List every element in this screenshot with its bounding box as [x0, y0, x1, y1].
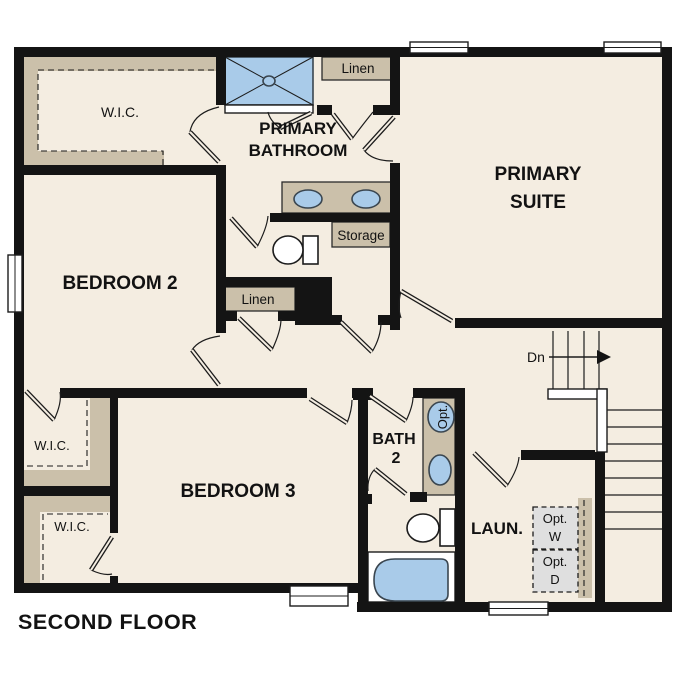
room-label-bath2-line2: 2 — [392, 450, 401, 467]
shower-curb — [225, 105, 313, 113]
closet-label-storage: Storage — [337, 228, 384, 243]
closet-label-linen-hall: Linen — [241, 292, 274, 307]
optional-dryer-label-line2: D — [550, 572, 559, 587]
sink-icon — [352, 190, 380, 208]
room-label-primary-suite-line1: PRIMARY — [495, 164, 582, 185]
window — [604, 42, 661, 53]
sink-icon — [294, 190, 322, 208]
closet-label-wic-lower: W.I.C. — [54, 519, 89, 534]
optional-washer-label-line2: W — [549, 529, 562, 544]
wall-mass — [295, 277, 332, 325]
shower — [225, 57, 313, 113]
room-label-bedroom2: BEDROOM 2 — [62, 273, 177, 294]
optional-washer-label-line1: Opt. — [543, 511, 568, 526]
room-label-laundry: LAUN. — [471, 519, 523, 538]
closet-label-linen-upper: Linen — [341, 61, 374, 76]
closet-label-wic-mid: W.I.C. — [34, 438, 69, 453]
optional-sink-label: Opt. — [435, 405, 450, 430]
room-label-bath2-line1: BATH — [372, 431, 415, 448]
second-floor-plan: BEDROOM 2 BEDROOM 3 PRIMARY BATHROOM PRI… — [0, 0, 687, 687]
window — [290, 586, 348, 606]
window — [8, 255, 22, 312]
plan-title: SECOND FLOOR — [18, 610, 197, 634]
floorplan-page: BEDROOM 2 BEDROOM 3 PRIMARY BATHROOM PRI… — [0, 0, 687, 687]
closet-label-wic-primary: W.I.C. — [101, 104, 139, 120]
window — [410, 42, 468, 53]
room-label-primary-suite-line2: SUITE — [510, 192, 566, 213]
room-label-bedroom3: BEDROOM 3 — [180, 481, 295, 502]
shower-drain — [263, 76, 275, 86]
laundry-counter — [578, 498, 592, 598]
room-label-primary-bathroom-line2: BATHROOM — [249, 141, 348, 160]
stair-railing — [597, 389, 607, 452]
sink-icon — [429, 455, 451, 485]
toilet-icon — [273, 236, 318, 264]
window — [489, 602, 548, 615]
optional-dryer-label-line1: Opt. — [543, 554, 568, 569]
stairs-down-label: Dn — [527, 349, 545, 365]
bathtub — [368, 552, 455, 602]
room-label-primary-bathroom-line1: PRIMARY — [259, 119, 337, 138]
